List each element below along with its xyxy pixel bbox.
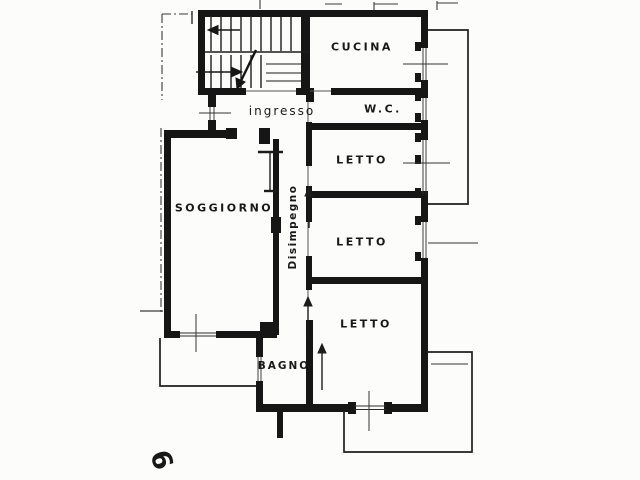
door-arrowhead-icon [318,344,326,353]
wall-segment [164,130,171,338]
wall-pier [226,128,237,139]
room-label-letto-1: LETTO [336,154,388,167]
wall-segment [306,122,312,166]
wall-pier [415,42,421,51]
wall-pier [259,128,270,144]
wall-segment [164,331,180,338]
wall-segment [216,331,258,338]
wall-segment [306,277,428,284]
balcony-outline [160,338,256,386]
interior-walls [259,17,428,406]
wall-segment [421,195,428,222]
wall-pier [415,113,421,122]
boundary-lines [140,0,458,312]
wall-segment [331,88,421,95]
room-label-wc: W.C. [364,103,402,116]
balcony-outline [428,30,468,204]
wall-segment [421,80,428,98]
room-label-ingresso: ingresso [249,104,315,118]
wall-pier [415,252,421,261]
wall-segment [306,256,312,290]
wall-pier [415,216,421,225]
wall-pier [260,322,277,338]
wall-pier [271,217,281,233]
wall-segment [164,130,228,138]
wall-segment [256,404,354,412]
wall-segment [198,10,205,95]
room-label-bagno: BAGNO [258,360,310,372]
floor-plan-drawing [0,0,640,480]
room-label-disimpegno: Disimpegno [287,185,299,270]
door-arrowhead-icon [304,297,312,306]
room-label-cucina: CUCINA [331,41,393,54]
wall-segment [421,10,428,48]
wall-pier [348,402,356,414]
wall-pier [306,88,314,102]
wall-segment [198,88,246,95]
wall-pier [415,133,421,142]
wall-segment [386,404,428,412]
wall-segment [273,139,279,335]
stair-arrowhead-left-icon [208,26,218,35]
floor-plan-sheet: CUCINA ingresso W.C. LETTO LETTO LETTO S… [0,0,640,480]
staircase [205,17,310,88]
wall-segment [306,191,428,198]
wall-segment [256,381,263,406]
room-label-soggiorno: SOGGIORNO [175,202,273,215]
room-label-letto-2: LETTO [336,236,388,249]
wall-segment [198,10,428,17]
wall-pier [415,73,421,82]
room-label-letto-3: LETTO [340,318,392,331]
wall-pier [384,402,392,414]
balcony-outline [344,352,472,452]
pipe-post [277,412,283,438]
wall-pier [208,93,216,107]
wall-segment [306,123,428,130]
